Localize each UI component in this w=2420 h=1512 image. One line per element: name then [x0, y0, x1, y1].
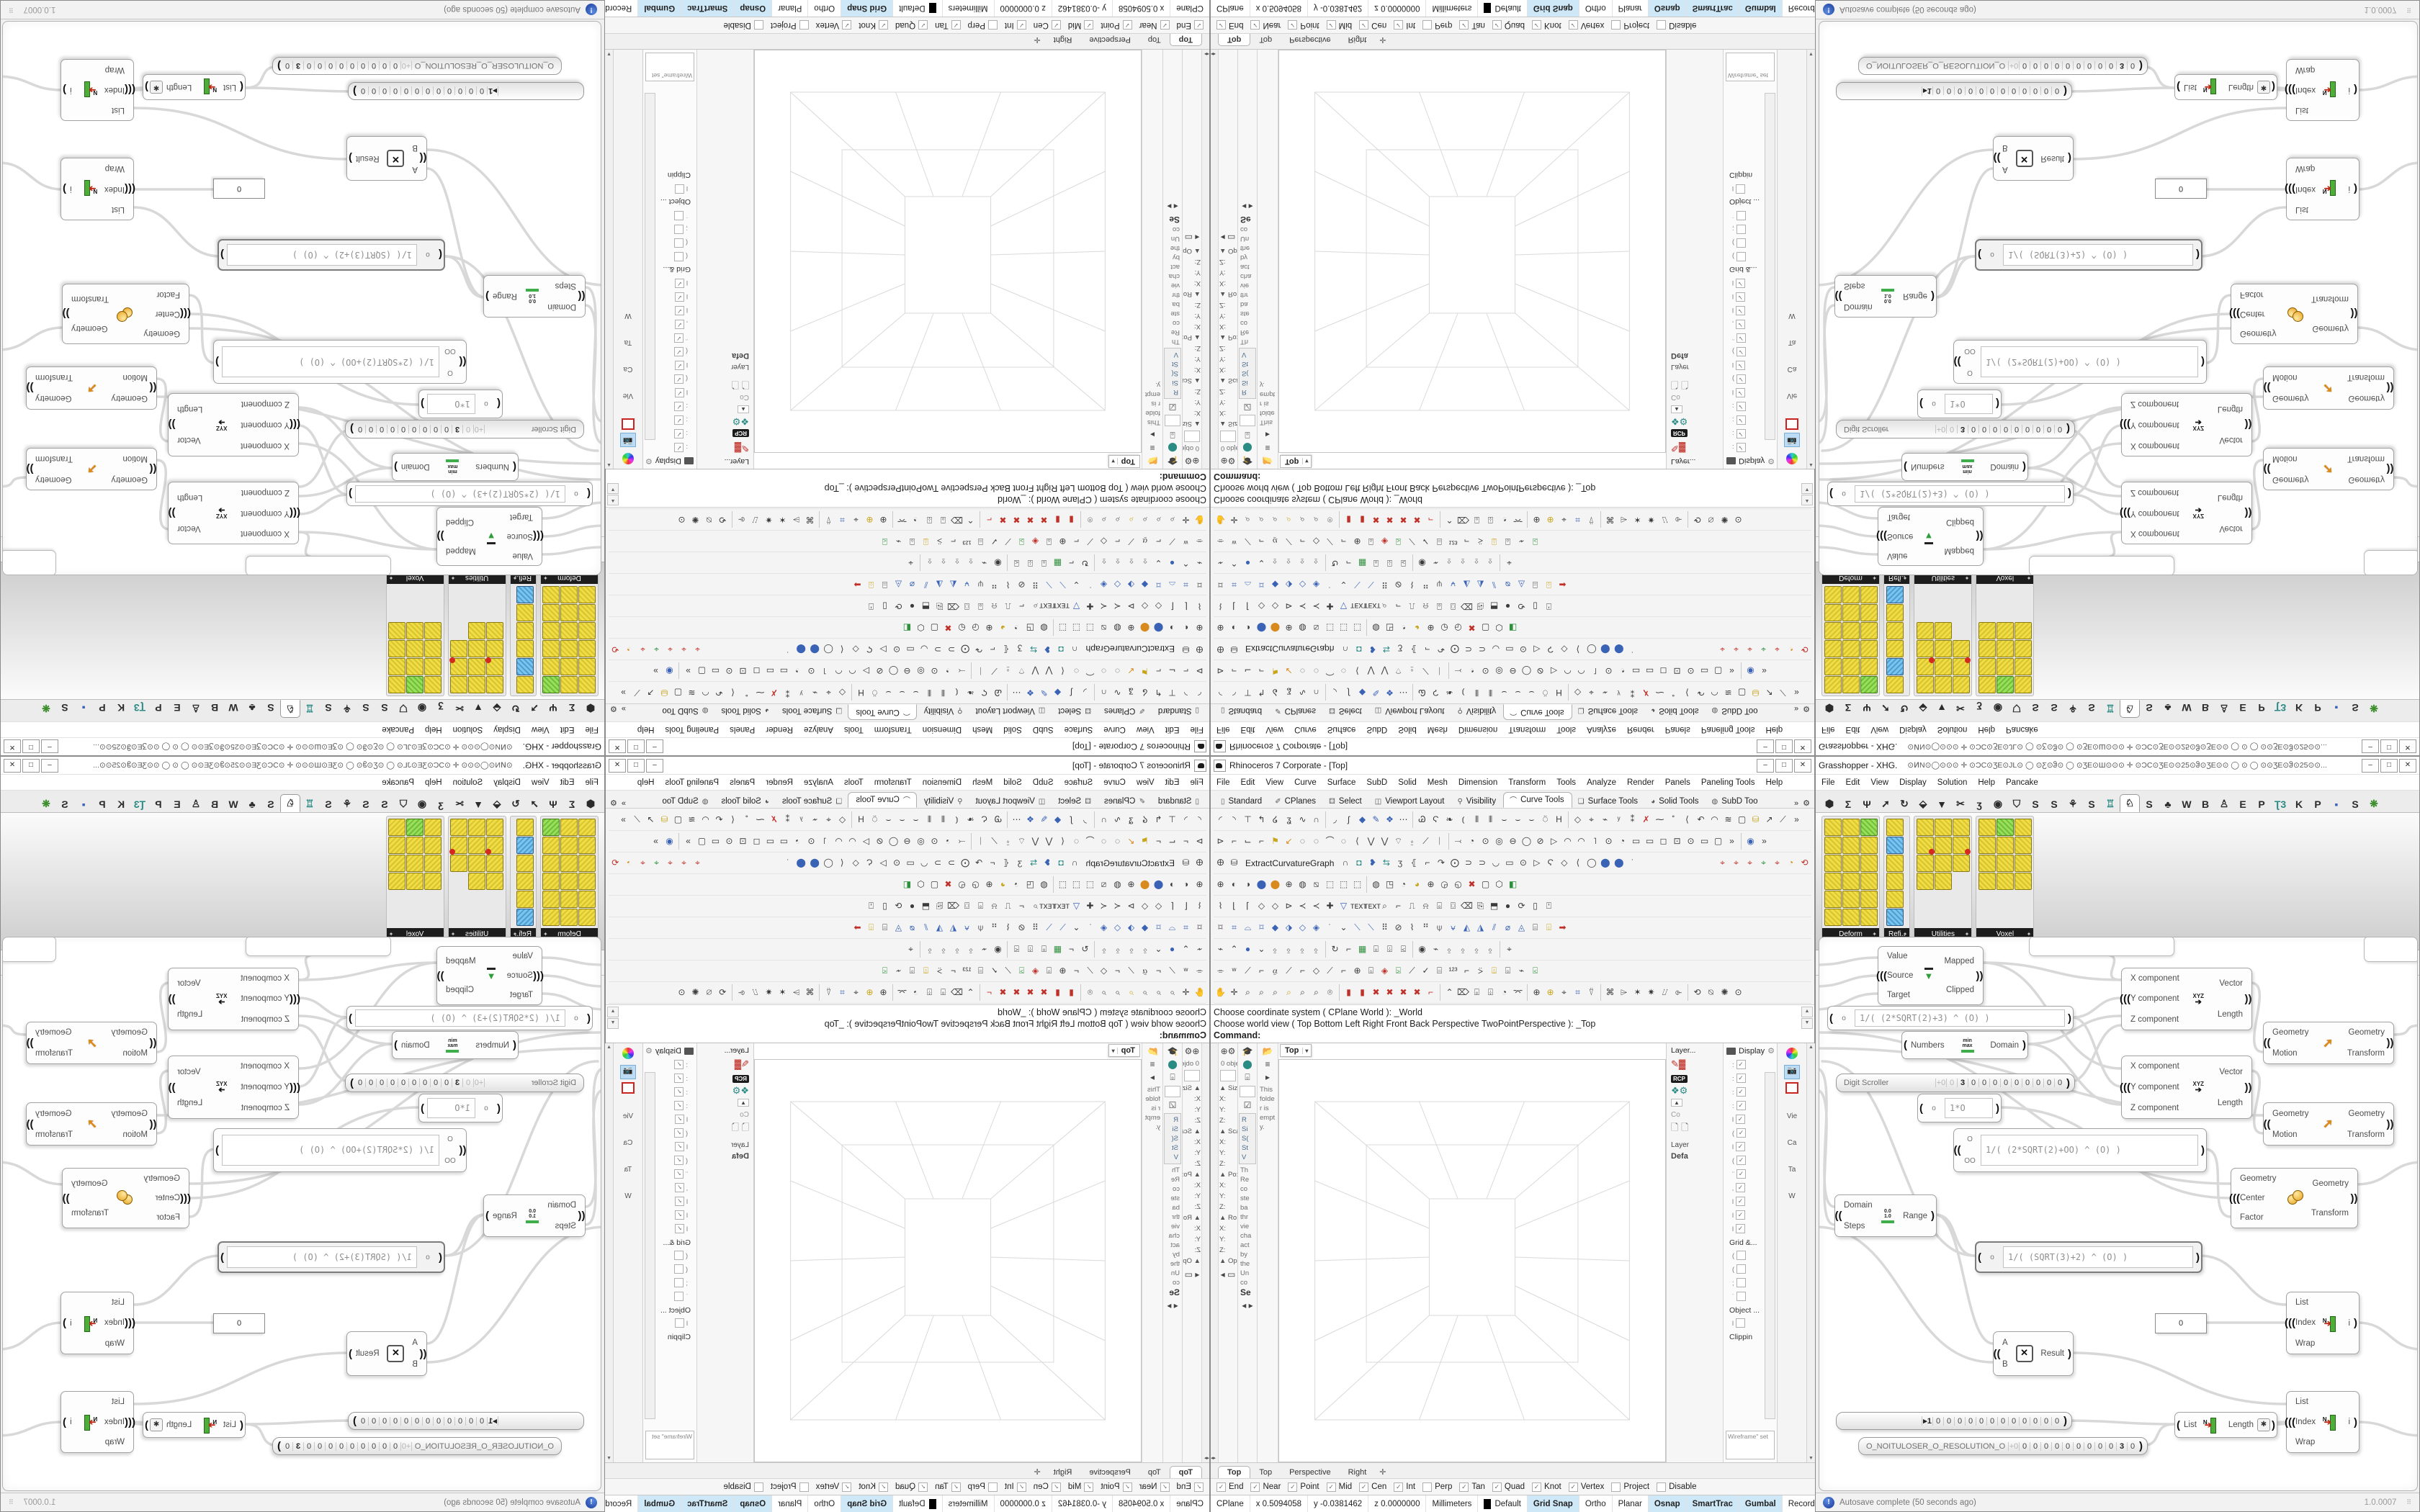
menu-edit[interactable]: Edit — [1165, 726, 1180, 734]
toolbar-icon[interactable]: ⬚ — [1083, 618, 1097, 637]
toolbar-icon[interactable]: ▦ — [1355, 940, 1369, 959]
component-icon[interactable] — [1886, 909, 1904, 926]
toolbar-icon[interactable]: ⦀ — [923, 810, 936, 829]
viewport-tab-top-0[interactable]: Top — [1170, 1466, 1202, 1478]
toolbar-icon[interactable]: ⌘ — [803, 510, 817, 529]
toolbar-icon[interactable]: ✛ — [1179, 510, 1193, 529]
toolbar-icon[interactable]: ⤙ — [1451, 832, 1465, 851]
toolbar-tab-standard[interactable]: ▯Standard — [1215, 796, 1269, 808]
toolbar-icon[interactable]: ⍞ — [864, 896, 878, 916]
toolbar-icon[interactable]: ⬒ — [1487, 596, 1501, 616]
toolbar-icon[interactable]: ⍚ — [1484, 940, 1497, 959]
layer-panel[interactable]: Layer... ✎▓ RCP ❖⚙ ▲ Co 🗋 🗋 Layer Defa — [697, 1043, 754, 1462]
color-wheel-icon[interactable] — [1785, 451, 1799, 464]
toolbar-icon[interactable]: ◵ — [955, 875, 969, 894]
menu-icon[interactable]: ≡ — [1258, 443, 1278, 453]
toolbar-icon[interactable]: ⌺ — [1501, 531, 1515, 551]
toolbar-icon[interactable]: ¹²³ — [960, 961, 974, 981]
gh-node-list-length[interactable]: (ListN➔Length✱) — [2174, 74, 2277, 100]
component-icon[interactable] — [542, 586, 560, 603]
toolbar-icon[interactable]: ⊖ — [900, 661, 914, 680]
toolbar-icon[interactable]: ⊤ — [1241, 810, 1255, 829]
gh-titlebar[interactable]: Grasshopper - XHG. ⊙ͶΝ⊙◯⊙⊙⊙ ✛ ⊙ƆC⊙ƷΕ⊙JL⊙… — [1, 757, 604, 775]
toolbar-icon[interactable]: ◇ — [849, 853, 863, 873]
toolbar-icon[interactable]: » — [1725, 832, 1739, 851]
toolbar-icon[interactable]: ⌖ — [691, 853, 704, 873]
toolbar-icon[interactable]: ✚ — [1323, 596, 1337, 616]
toolbar-icon[interactable]: ˙ — [1323, 918, 1337, 937]
toolbar-icon[interactable]: ⦃ — [1000, 853, 1013, 873]
toolbar-icon[interactable]: ◆ — [1138, 575, 1152, 594]
toolbar-tab-subd-too[interactable]: ◍SubD Too — [655, 796, 714, 808]
rhino-command-area[interactable]: Choose coordinate system ( CPlane World … — [1211, 469, 1814, 508]
viewport-properties-panel[interactable]: VieCaTaW — [1777, 1043, 1806, 1462]
toolbar-icon[interactable]: ⌻ — [936, 983, 950, 1002]
toolbar-tab-solid-tools[interactable]: ◕Solid Tools — [1645, 796, 1706, 808]
toolbar-icon[interactable]: ◑ — [1165, 618, 1179, 637]
display-checkbox[interactable] — [1736, 1060, 1746, 1069]
toolbar-icon[interactable]: ⍚ — [1097, 940, 1111, 959]
toolbar-icon[interactable]: ◇ — [1255, 596, 1268, 616]
toolbar-icon[interactable]: ⍥ — [868, 810, 882, 829]
new-viewport-tab-button[interactable]: ✛ — [1375, 1466, 1390, 1478]
component-icon[interactable] — [1886, 658, 1904, 675]
new-viewport-tab-button[interactable]: ✛ — [1375, 34, 1390, 46]
gh-category-tab-12[interactable]: S — [357, 796, 375, 812]
toolbar-icon[interactable]: ◎ — [1492, 832, 1506, 851]
toolbar-icon[interactable]: ⍾ — [1419, 596, 1433, 616]
osnap-checkbox-perp[interactable] — [988, 1482, 998, 1492]
swatch[interactable] — [1165, 415, 1180, 426]
toolbar-icon[interactable]: ◻ — [750, 661, 763, 680]
checkbox[interactable]: ☑ — [1163, 1100, 1182, 1110]
component-icon[interactable] — [468, 622, 485, 639]
toolbar-icon[interactable]: ⨀ — [959, 853, 972, 873]
toolbar-icon[interactable]: ⌸ — [878, 918, 892, 937]
toolbar-icon[interactable]: ⌗ — [1179, 575, 1193, 594]
display-checkbox[interactable] — [675, 1183, 684, 1192]
gh-category-tab-15[interactable]: ♖ — [300, 700, 319, 716]
toolbar-icon[interactable]: ⌁ — [892, 961, 905, 981]
gh-node-expression-selected[interactable]: (o1/( (SQRT(3)+2) ^ (O) )) — [218, 1241, 445, 1273]
toolbar-icon[interactable]: ▭ — [1698, 832, 1711, 851]
gh-category-tab-24[interactable]: Ʈ3 — [2271, 796, 2290, 812]
menu-render[interactable]: Render — [766, 726, 793, 734]
toolbar-icon[interactable]: ⬤ — [1152, 618, 1165, 637]
menu-mesh[interactable]: Mesh — [972, 778, 992, 787]
component-icon[interactable] — [1917, 873, 1934, 890]
osnap-item-mid[interactable]: Mid — [1327, 21, 1353, 30]
toolbar-icon[interactable]: ⌐ — [1179, 832, 1193, 851]
toolbar-icon[interactable]: ⊃ — [1461, 853, 1475, 873]
toolbar-icon[interactable]: ⌖ — [1743, 853, 1757, 873]
component-icon[interactable] — [486, 873, 503, 890]
toolbar-tab-surface-tools[interactable]: ❏Surface Tools — [775, 704, 848, 716]
minimize-button[interactable]: – — [2362, 759, 2379, 773]
viewport[interactable] — [754, 50, 1142, 453]
menu-icon[interactable]: ≡ — [1142, 443, 1162, 453]
toolbar-icon[interactable]: ⌣ — [1511, 810, 1525, 829]
toolbar-icon[interactable]: ⟋ — [1776, 810, 1790, 829]
toolbar-icon[interactable]: ⌕ — [1124, 983, 1138, 1002]
toolbar-icon[interactable]: ∿ — [1111, 683, 1124, 702]
menu-paneling-tools[interactable]: Paneling Tools — [1701, 778, 1755, 787]
toolbar-icon[interactable]: ⍚ — [1268, 553, 1282, 572]
toolbar-icon[interactable]: ▢ — [1711, 832, 1725, 851]
toolbar-icon[interactable]: ◔ — [941, 832, 955, 851]
toolbar-icon[interactable]: ⌐ — [1255, 832, 1268, 851]
toolbar-icon[interactable]: ◔ — [909, 510, 923, 529]
toolbar-icon[interactable]: ≺ — [1111, 896, 1124, 916]
toolbar-icon[interactable]: ⊘ — [1015, 918, 1028, 937]
toolbar-icon[interactable]: ◌ — [1097, 661, 1111, 680]
toolbar-icon[interactable]: ⌁ — [1193, 940, 1206, 959]
command-scroll-buttons[interactable]: ▲▼ — [607, 1007, 619, 1030]
toolbar-icon[interactable]: ⊕ — [1214, 618, 1227, 637]
gh-category-tab-2[interactable]: Ψ — [544, 796, 563, 812]
menu-solid[interactable]: Solid — [1003, 726, 1022, 734]
expand-icon[interactable]: ▸ — [1258, 1072, 1278, 1082]
toolbar-icon[interactable]: ◇ — [1571, 683, 1585, 702]
toolbar-icon[interactable]: ⌹ — [864, 918, 878, 937]
toolbar-icon[interactable]: ⌖ — [677, 853, 691, 873]
status-default[interactable]: Default — [892, 1495, 941, 1512]
toolbar-icon[interactable]: ▷ — [859, 832, 873, 851]
toolbar-icon[interactable]: ⊳ — [1124, 596, 1138, 616]
toolbar-icon[interactable]: ⌙ — [1165, 832, 1179, 851]
boxedit-panel[interactable]: ⊕⚙ 0 objec ▲ SizX:Y:Z:▲ ScaX:Y:Z:▲ Po:X:… — [1219, 50, 1238, 469]
gh-category-tab-23[interactable]: P — [2252, 796, 2271, 812]
display-checkbox[interactable] — [675, 320, 684, 329]
gh-node-expression-selected[interactable]: (o1/( (SQRT(3)+2) ^ (O) )) — [1975, 239, 2202, 271]
toolbar-icon[interactable]: » — [617, 683, 630, 702]
notes-panel[interactable]: 📂 ≡ ▸ Thisfolder isempty. — [1142, 1043, 1162, 1462]
gh-category-tab-20[interactable]: B — [2196, 796, 2215, 812]
toolbar-icon[interactable]: ⦀ — [923, 683, 936, 702]
osnap-item-quad[interactable]: Quad — [895, 21, 928, 30]
menu-edit[interactable]: Edit — [1241, 726, 1255, 734]
toolbar-icon[interactable]: ⌙ — [1165, 661, 1179, 680]
display-checkbox[interactable] — [1736, 1318, 1745, 1328]
display-checkbox[interactable] — [1736, 1251, 1746, 1260]
gh-node-vector-xyz[interactable]: (((X componentY componentZ componentXYZ➔… — [2121, 393, 2252, 456]
status-gumbal[interactable]: Gumbal — [637, 0, 681, 17]
toolbar-icon[interactable]: ✖ — [1369, 510, 1383, 529]
toolbar-icon[interactable]: ⬚ — [1083, 875, 1097, 894]
toolbar-icon[interactable]: ⌖ — [650, 639, 663, 659]
gh-category-tab-15[interactable]: ♖ — [300, 796, 319, 812]
toolbar-icon[interactable]: ◐ — [1227, 618, 1241, 637]
toolbar-icon[interactable]: ⌙ — [1241, 832, 1255, 851]
toolbar-icon[interactable]: ⟨ — [1680, 683, 1694, 702]
toolbar-icon[interactable]: ⦅ — [950, 810, 964, 829]
toolbar-icon[interactable]: ◉ — [991, 553, 1005, 572]
close-button[interactable]: ✕ — [1794, 740, 1811, 754]
toolbar-icon[interactable]: ⊡ — [736, 661, 750, 680]
toolbar-icon[interactable]: ⌒ — [1323, 661, 1337, 680]
toolbar-icon[interactable]: ↶ — [1694, 683, 1708, 702]
toolbar-icon[interactable]: ˙ — [1083, 918, 1097, 937]
toolbar-icon[interactable]: ∩ — [1309, 683, 1323, 702]
status-osnap[interactable]: Osnap — [1649, 0, 1687, 17]
toolbar-icon[interactable]: ◇ — [1557, 639, 1571, 659]
component-icon[interactable] — [406, 658, 423, 675]
status-record-history[interactable]: Record History — [604, 1495, 637, 1512]
toolbar-icon[interactable]: ⌐ — [1065, 940, 1078, 959]
toolbar-icon[interactable]: ⌐ — [946, 531, 960, 551]
toolbar-icon[interactable]: ↙ — [1124, 661, 1138, 680]
gear-icon[interactable]: ⊕⚙ — [1219, 1046, 1237, 1056]
toolbar-icon[interactable]: ▽ — [1070, 596, 1083, 616]
gh-node-named-slider[interactable]: O_NOITULOSER_O_RESOLUTION_O+000000000030… — [272, 57, 562, 75]
component-icon[interactable] — [1860, 855, 1878, 872]
menu-view[interactable]: View — [1870, 778, 1888, 787]
gh-category-tab-3[interactable]: ➚ — [525, 796, 544, 812]
material-icon[interactable]: ⬤ — [1238, 443, 1257, 453]
gh-category-tab-18[interactable]: ♣ — [243, 796, 261, 812]
toolbar-icon[interactable]: ◉ — [663, 832, 676, 851]
toolbar-icon[interactable]: ⌦ — [950, 510, 964, 529]
gh-category-tab-15[interactable]: ♖ — [2101, 700, 2120, 716]
osnap-item-knot[interactable]: Knot — [859, 21, 888, 30]
osnap-checkbox-perp[interactable] — [1422, 21, 1432, 30]
toolbar-icon[interactable]: ⊤ — [1241, 683, 1255, 702]
toolbar-icon[interactable]: ↷ — [1434, 853, 1448, 873]
gh-node-move[interactable]: ((GeometryMotion➚GeometryTransform)) — [26, 1022, 157, 1064]
boxedit-panel[interactable]: ⊕⚙ 0 objec ▲ SizX:Y:Z:▲ ScaX:Y:Z:▲ Po:X:… — [1182, 50, 1201, 469]
toolbar-tab-solid-tools[interactable]: ◕Solid Tools — [714, 796, 774, 808]
gh-category-tab-0[interactable]: ⬢ — [581, 700, 600, 716]
menu-view[interactable]: View — [1137, 726, 1155, 734]
toolbar-icon[interactable]: ◑ — [1241, 618, 1255, 637]
osnap-item-knot[interactable]: Knot — [859, 1482, 888, 1492]
toolbar-icon[interactable]: ⌺ — [905, 961, 919, 981]
toolbar-icon[interactable]: ⌐ — [1111, 531, 1124, 551]
toolbar-icon[interactable]: ⌖ — [849, 983, 863, 1002]
toolbar-icon[interactable]: ▭ — [709, 661, 722, 680]
toolbar-icon[interactable]: ⌐ — [1227, 661, 1241, 680]
toolbar-icon[interactable]: ⚑ — [1138, 661, 1152, 680]
toolbar-icon[interactable]: ⌸ — [1528, 575, 1542, 594]
component-icon[interactable] — [1935, 658, 1952, 675]
status-planar[interactable]: Planar — [1613, 0, 1649, 17]
toolbar-icon[interactable]: ◬ — [1515, 918, 1528, 937]
gh-node-clipped-node[interactable] — [2364, 550, 2418, 575]
component-icon[interactable] — [1842, 891, 1860, 908]
osnap-item-disable[interactable]: Disable — [1657, 1482, 1696, 1492]
menu-edit[interactable]: Edit — [560, 778, 575, 787]
gh-node-range[interactable]: ((DomainSteps0.01.0Range) — [1834, 1194, 1937, 1237]
pencil-icon[interactable]: ✎▓ — [697, 442, 749, 454]
toolbar-icon[interactable]: Η — [1552, 683, 1566, 702]
component-icon[interactable] — [1935, 819, 1952, 836]
gh-category-tab-21[interactable]: ♙ — [187, 700, 205, 716]
toolbar-icon[interactable]: ⌀ — [905, 918, 919, 937]
toolbar-icon[interactable]: ⠿ — [1378, 575, 1391, 594]
osnap-checkbox-project[interactable] — [1611, 1482, 1621, 1492]
toolbar-icon[interactable]: ⌈ — [1241, 596, 1255, 616]
osnap-checkbox-vertex[interactable] — [1569, 21, 1578, 30]
toolbar-tab-solid-tools[interactable]: ◕Solid Tools — [714, 704, 774, 716]
minimize-button[interactable]: – — [1757, 759, 1774, 773]
gh-category-tab-10[interactable]: ⛉ — [2007, 700, 2026, 716]
status-millimeters[interactable]: Millimeters — [942, 0, 994, 17]
toolbar-overflow[interactable]: » ⚙ — [1794, 798, 1814, 808]
menu-help[interactable]: Help — [1978, 778, 1995, 787]
expand-icon[interactable]: ▸ — [1142, 1072, 1162, 1082]
component-icon[interactable] — [1917, 855, 1934, 872]
osnap-checkbox-tan[interactable] — [1459, 1482, 1469, 1492]
toolbar-icon[interactable]: ⠛ — [1419, 918, 1433, 937]
toolbar-icon[interactable]: ⊕ — [1543, 983, 1557, 1002]
toolbar-icon[interactable]: ❖ — [1023, 683, 1037, 702]
toolbar-icon[interactable]: ⌸ — [878, 575, 892, 594]
osnap-checkbox-perp[interactable] — [1422, 1482, 1432, 1492]
display-checkbox[interactable] — [1736, 1156, 1746, 1165]
viewport-tab-top-1[interactable]: Top — [1139, 34, 1170, 45]
toolbar-icon[interactable]: ⍚ — [1484, 553, 1497, 572]
toolbar-icon[interactable]: ⍩ — [933, 531, 946, 551]
display-checkbox[interactable] — [1736, 388, 1745, 397]
toolbar-tab-select[interactable]: ⚃Select — [1051, 796, 1097, 808]
toolbar-icon[interactable]: ✺ — [1718, 983, 1731, 1002]
status-smarttrac[interactable]: SmartTrac — [1687, 0, 1739, 17]
toolbar-icon[interactable]: ⟍ — [1056, 575, 1070, 594]
toolbar-icon[interactable]: ◠ — [846, 832, 859, 851]
toolbar-icon[interactable]: ⍦ — [1433, 575, 1446, 594]
toolbar-icon[interactable]: ◔ — [909, 983, 923, 1002]
status-ortho[interactable]: Ortho — [807, 0, 841, 17]
gh-node-named-slider[interactable]: O_NOITULOSER_O_RESOLUTION_O+000000000030… — [1858, 1437, 2148, 1455]
gh-category-tab-16[interactable]: ♘ — [280, 794, 300, 812]
component-icon[interactable] — [2015, 873, 2032, 890]
component-icon[interactable] — [542, 855, 560, 872]
toolbar-icon[interactable]: ⌁ — [1598, 683, 1612, 702]
toolbar-icon[interactable]: ⊕ — [1282, 875, 1296, 894]
toolbar-icon[interactable]: ˙ — [1626, 853, 1639, 873]
osnap-item-perp[interactable]: Perp — [1422, 1482, 1452, 1492]
menu-help[interactable]: Help — [1978, 726, 1995, 734]
gh-node-digit-scroller[interactable]: Digit Scroller+003000000000) — [1836, 1074, 2075, 1092]
toolbar-icon[interactable]: ⌖ — [1757, 853, 1770, 873]
gh-titlebar[interactable]: Grasshopper - XHG. ⊙ͶΝ⊙◯⊙⊙⊙ ✛ ⊙ƆC⊙ƷΕ⊙JL⊙… — [1, 737, 604, 755]
toolbar-icon[interactable]: ◶ — [1438, 875, 1451, 894]
toolbar-icon[interactable]: ⌄ — [1152, 553, 1165, 572]
toolbar-icon[interactable]: ⟳ — [892, 896, 905, 916]
osnap-checkbox-int[interactable] — [1017, 21, 1026, 30]
toolbar-icon[interactable]: ⍶ — [1138, 531, 1152, 551]
menu-panels[interactable]: Panels — [730, 778, 755, 787]
toolbar-icon[interactable]: ✶ — [1631, 510, 1644, 529]
toolbar-icon[interactable]: ✗ — [767, 810, 781, 829]
toolbar-icon[interactable]: ⟋ — [987, 661, 1001, 680]
toolbar-icon[interactable]: ⍄ — [1015, 531, 1028, 551]
menu-view[interactable]: View — [1137, 778, 1155, 787]
menu-edit[interactable]: Edit — [1165, 778, 1180, 787]
status-osnap[interactable]: Osnap — [733, 1495, 771, 1512]
rhino-command-area[interactable]: Choose coordinate system ( CPlane World … — [1211, 1004, 1814, 1043]
toolbar-icon[interactable]: ✖ — [1397, 983, 1410, 1002]
toolbar-icon[interactable]: ᴛᴇxᴛ — [1350, 596, 1364, 616]
toolbar-icon[interactable]: » — [649, 832, 663, 851]
toolbar-icon[interactable]: ◇ — [849, 639, 863, 659]
toolbar-icon[interactable]: ⌁ — [1515, 961, 1528, 981]
toolbar-icon[interactable]: ⊕ — [1124, 875, 1138, 894]
toolbar-icon[interactable]: ⍦ — [1433, 918, 1446, 937]
toolbar-icon[interactable]: ▭ — [904, 639, 918, 659]
display-checkbox[interactable] — [1736, 225, 1746, 234]
toolbar-icon[interactable]: ⎘ — [933, 596, 946, 616]
scroll-up[interactable]: ▲ — [738, 405, 749, 413]
toolbar-icon[interactable]: Η — [854, 683, 868, 702]
command-prompt[interactable]: Command: — [609, 1030, 1206, 1041]
toolbar-icon[interactable]: ⌄ — [1070, 575, 1083, 594]
toolbar-icon[interactable]: ● — [1241, 940, 1255, 959]
toolbar-icon[interactable]: ◇ — [835, 683, 849, 702]
toolbar-icon[interactable]: ◉ — [991, 940, 1005, 959]
display-checkbox[interactable] — [1736, 1210, 1745, 1220]
toolbar-icon[interactable]: ◇ — [835, 810, 849, 829]
component-icon[interactable] — [468, 855, 485, 872]
toolbar-icon[interactable]: ↗ — [644, 683, 658, 702]
display-checkbox[interactable] — [1736, 429, 1746, 438]
status-cplane[interactable]: CPlane — [1211, 0, 1250, 17]
toolbar-icon[interactable]: ◯ — [887, 661, 900, 680]
gh-category-tab-27[interactable]: ▪ — [2327, 796, 2346, 812]
gh-category-tab-29[interactable]: ❋ — [2365, 796, 2383, 812]
toolbar-icon[interactable]: ◯ — [1585, 853, 1598, 873]
status-smarttrac[interactable]: SmartTrac — [1687, 1495, 1739, 1512]
toolbar-icon[interactable]: ⌕ — [1138, 510, 1152, 529]
toolbar-tab-subd-too[interactable]: ◍SubD Too — [1706, 704, 1765, 716]
toolbar-icon[interactable]: ⌫ — [1460, 596, 1474, 616]
gh-category-tab-17[interactable]: S — [261, 796, 280, 812]
toolbar-icon[interactable]: ʸ — [794, 683, 808, 702]
toolbar-icon[interactable]: ❥ — [1041, 853, 1054, 873]
maximize-button[interactable]: □ — [1775, 740, 1793, 754]
toolbar-icon[interactable]: ⌣ — [909, 810, 923, 829]
toolbar-icon[interactable]: ⟲ — [716, 510, 730, 529]
gh-category-tab-17[interactable]: S — [261, 700, 280, 716]
toolbar-tab-viewport-layout[interactable]: ◫Viewport Layout — [1369, 704, 1452, 716]
osnap-checkbox-disable[interactable] — [754, 21, 763, 30]
toolbar-icon[interactable]: ⌁ — [1429, 553, 1443, 572]
component-icon[interactable] — [1824, 640, 1842, 657]
toolbar-icon[interactable]: ⋁ — [1042, 832, 1056, 851]
toolbar-icon[interactable]: ⊡ — [1670, 661, 1684, 680]
component-icon[interactable] — [516, 873, 534, 890]
gh-category-tab-22[interactable]: E — [2233, 700, 2252, 716]
toolbar-icon[interactable]: ⇆ — [1379, 853, 1393, 873]
input-field[interactable] — [1184, 1070, 1200, 1081]
toolbar-icon[interactable]: ⦀ — [1484, 810, 1497, 829]
gh-category-tab-27[interactable]: ▪ — [74, 796, 93, 812]
toolbar-icon[interactable]: ⊳ — [1124, 896, 1138, 916]
gh-node-list-item[interactable]: (((ListIndexWrapN➔i) — [60, 1292, 134, 1354]
toolbar-icon[interactable]: ⌙ — [1241, 661, 1255, 680]
toolbar-icon[interactable]: ✎ — [1037, 683, 1051, 702]
help-icon[interactable]: 🎓 — [1163, 1046, 1182, 1056]
toolbar-icon[interactable]: ໒ — [1138, 810, 1152, 829]
toolbar-icon[interactable]: ⊘ — [873, 661, 887, 680]
component-icon[interactable] — [560, 837, 578, 854]
component-icon[interactable] — [388, 658, 405, 675]
toolbar-icon[interactable]: ˙ — [781, 853, 794, 873]
toolbar-icon[interactable]: ⊙ — [1731, 510, 1745, 529]
gh-category-tab-29[interactable]: ❋ — [37, 700, 55, 716]
toolbar-icon[interactable]: ⍱ — [1446, 918, 1460, 937]
display-checkbox[interactable] — [1736, 1278, 1746, 1287]
